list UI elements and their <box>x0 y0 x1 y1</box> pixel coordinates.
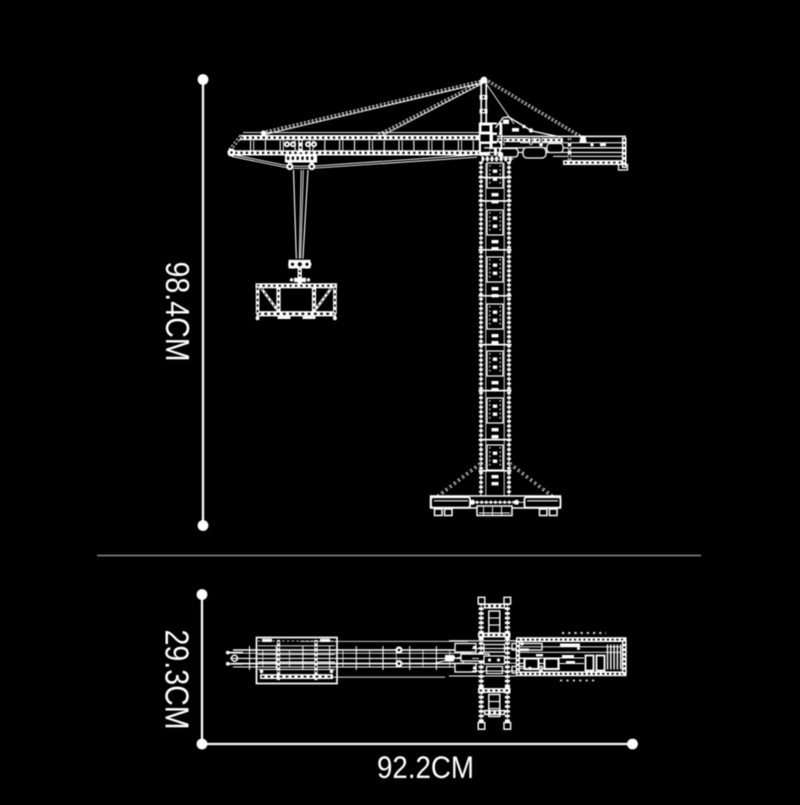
svg-text:98.4CM: 98.4CM <box>158 262 195 362</box>
svg-text:92.2CM: 92.2CM <box>377 749 474 785</box>
svg-text:29.3CM: 29.3CM <box>158 630 195 730</box>
